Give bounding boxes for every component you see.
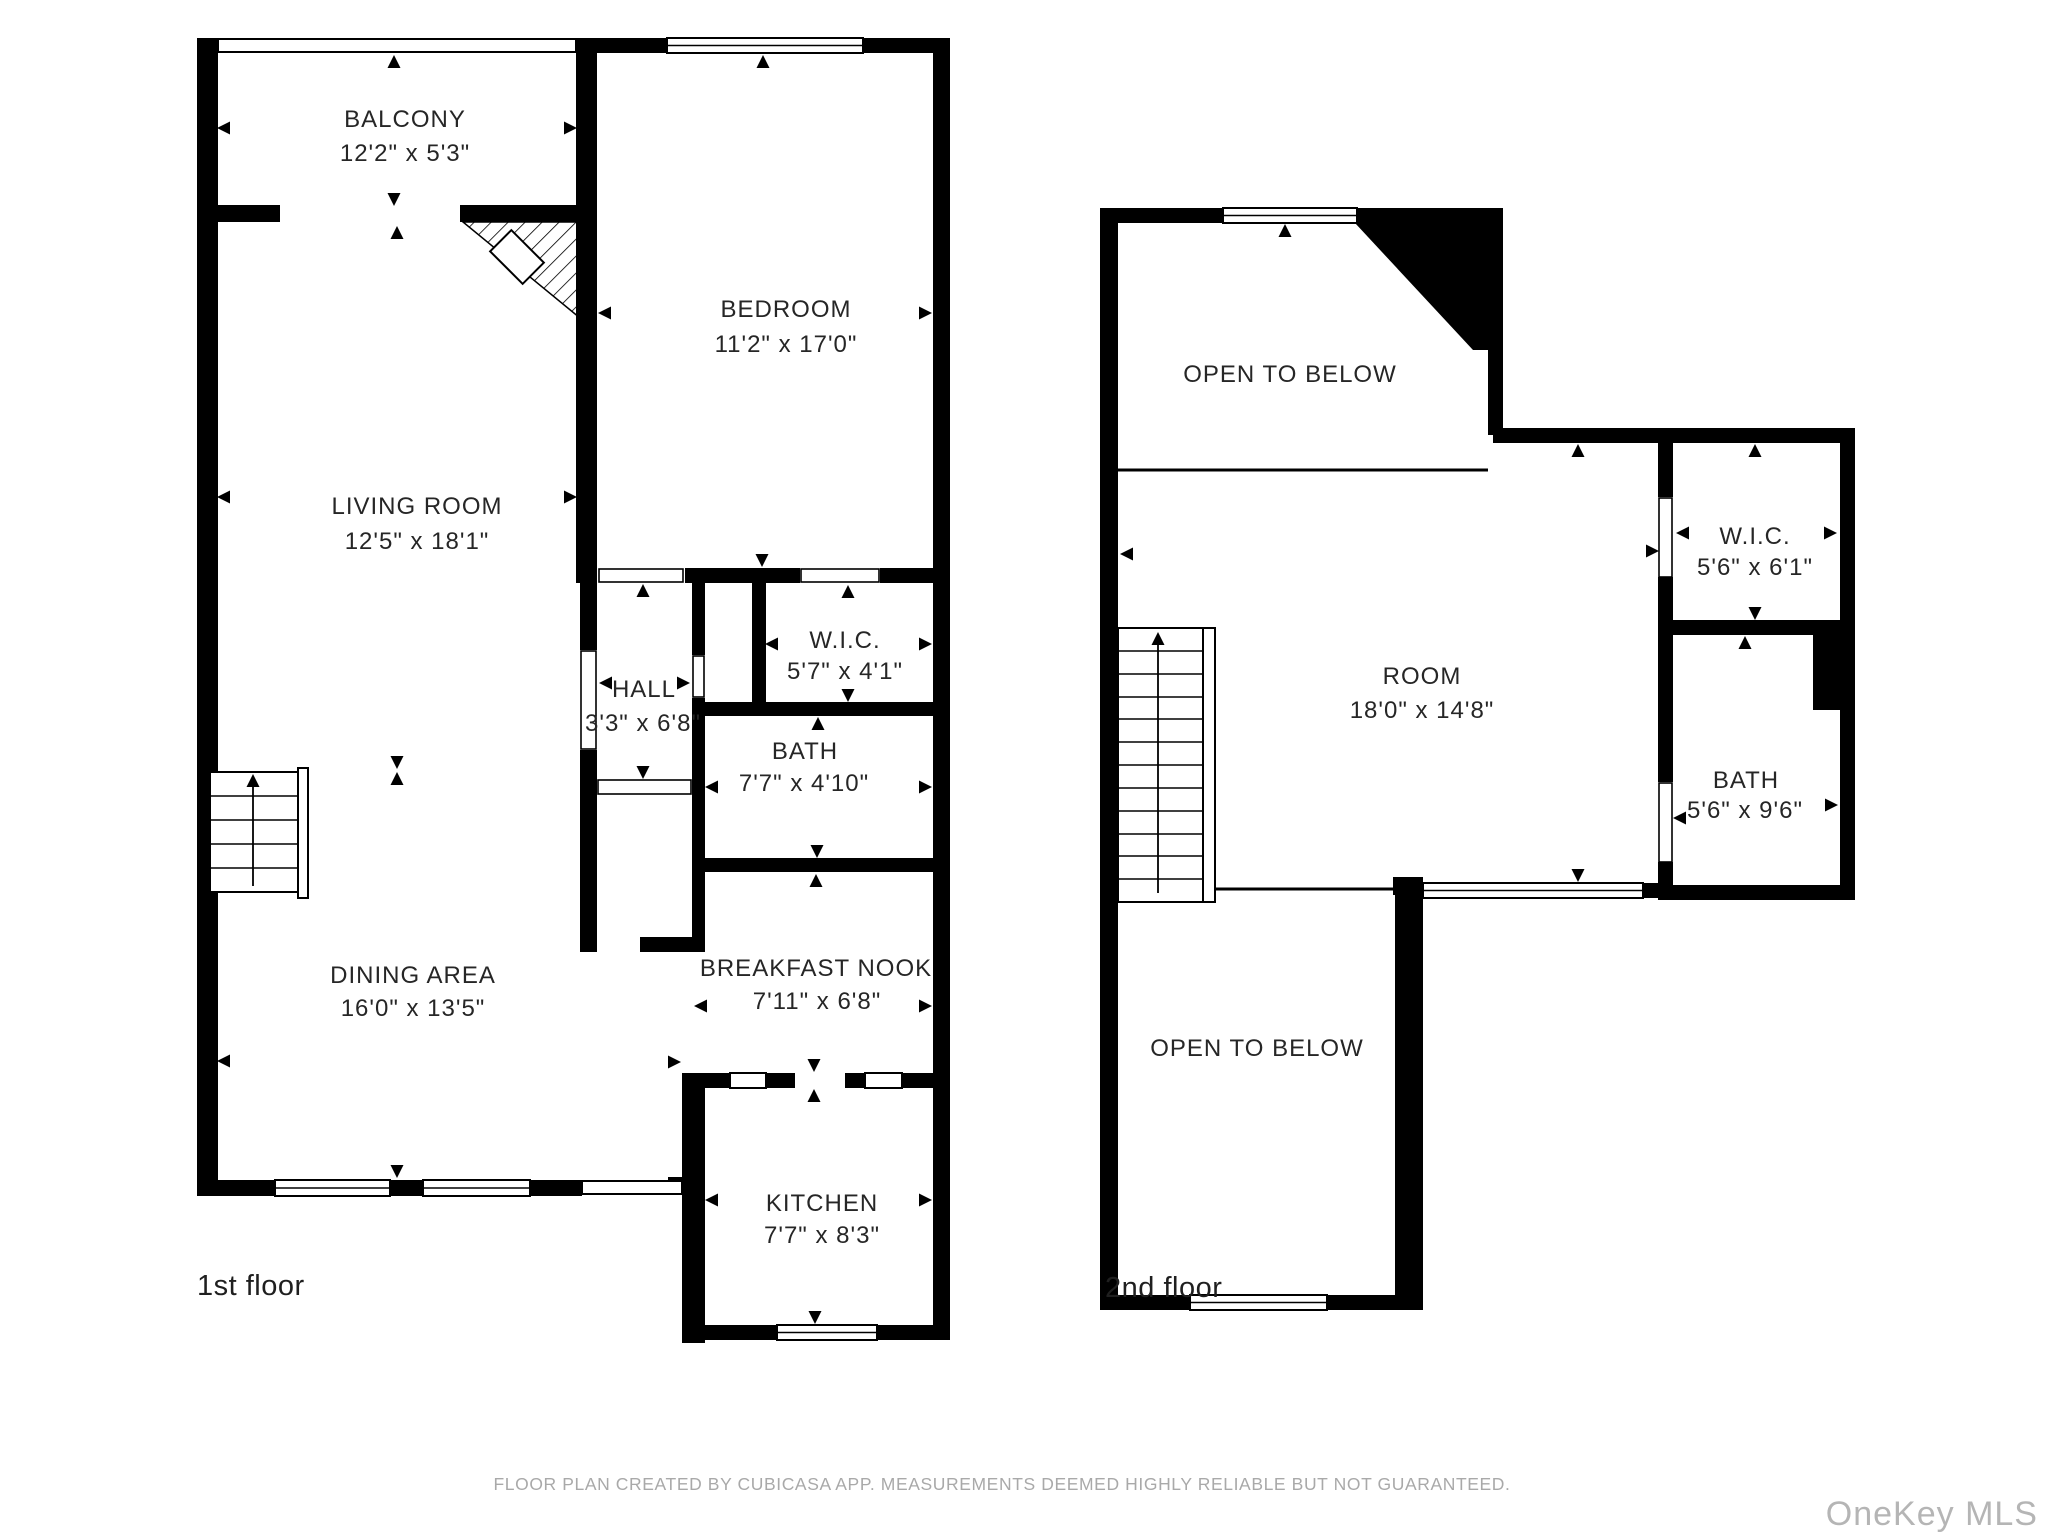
room-label-bedroom: BEDROOM xyxy=(720,296,851,323)
room-dims-living-room: 12'5" x 18'1" xyxy=(345,528,490,555)
room-label-hall: HALL xyxy=(612,676,676,703)
room-dims-wic-2: 5'6" x 6'1" xyxy=(1697,554,1813,581)
room-dims-room: 18'0" x 14'8" xyxy=(1350,697,1495,724)
room-label-bath-1: BATH xyxy=(772,738,838,765)
room-dims-balcony: 12'2" x 5'3" xyxy=(340,140,470,167)
room-dims-hall: 3'3" x 6'8" xyxy=(585,710,701,737)
room-label-balcony: BALCONY xyxy=(344,106,466,133)
room-dims-wic-1: 5'7" x 4'1" xyxy=(787,658,903,685)
hatched-stairs-icon xyxy=(463,222,580,318)
room-label-dining-area: DINING AREA xyxy=(330,962,496,989)
room-dims-bath-2: 5'6" x 9'6" xyxy=(1687,797,1803,824)
room-label-breakfast-nook: BREAKFAST NOOK xyxy=(700,955,932,982)
floor-label-2nd: 2nd floor xyxy=(1105,1272,1222,1304)
room-dims-breakfast-nook: 7'11" x 6'8" xyxy=(753,988,882,1015)
staircase-icon-first-floor xyxy=(210,768,308,898)
room-label-kitchen: KITCHEN xyxy=(766,1190,878,1217)
room-dims-bedroom: 11'2" x 17'0" xyxy=(715,331,858,358)
balcony-railing xyxy=(218,39,576,52)
first-floor-plan: BALCONY 12'2" x 5'3" BEDROOM 11'2" x 17'… xyxy=(197,38,950,1343)
room-dims-bath-1: 7'7" x 4'10" xyxy=(739,770,869,797)
floor-plan-canvas: BALCONY 12'2" x 5'3" BEDROOM 11'2" x 17'… xyxy=(0,0,2048,1536)
room-label-open-to-below-bottom: OPEN TO BELOW xyxy=(1150,1035,1364,1062)
staircase-icon-second-floor xyxy=(1118,628,1215,902)
room-dims-dining-area: 16'0" x 13'5" xyxy=(341,995,486,1022)
room-label-living-room: LIVING ROOM xyxy=(331,493,502,520)
second-floor-plan: OPEN TO BELOW ROOM 18'0" x 14'8" W.I.C. … xyxy=(1100,208,1855,1310)
disclaimer-text: FLOOR PLAN CREATED BY CUBICASA APP. MEAS… xyxy=(493,1474,1510,1494)
room-label-bath-2: BATH xyxy=(1713,767,1779,794)
room-dims-kitchen: 7'7" x 8'3" xyxy=(764,1222,880,1249)
room-label-room: ROOM xyxy=(1383,663,1462,690)
room-label-wic-1: W.I.C. xyxy=(809,627,880,654)
room-label-open-to-below-top: OPEN TO BELOW xyxy=(1183,361,1397,388)
room-label-wic-2: W.I.C. xyxy=(1719,523,1790,550)
room-labels-second-floor: OPEN TO BELOW ROOM 18'0" x 14'8" W.I.C. … xyxy=(1150,361,1813,1062)
watermark: OneKey MLS xyxy=(1826,1495,2038,1533)
floor-label-1st: 1st floor xyxy=(197,1270,305,1302)
room-labels-first-floor: BALCONY 12'2" x 5'3" BEDROOM 11'2" x 17'… xyxy=(330,106,932,1249)
